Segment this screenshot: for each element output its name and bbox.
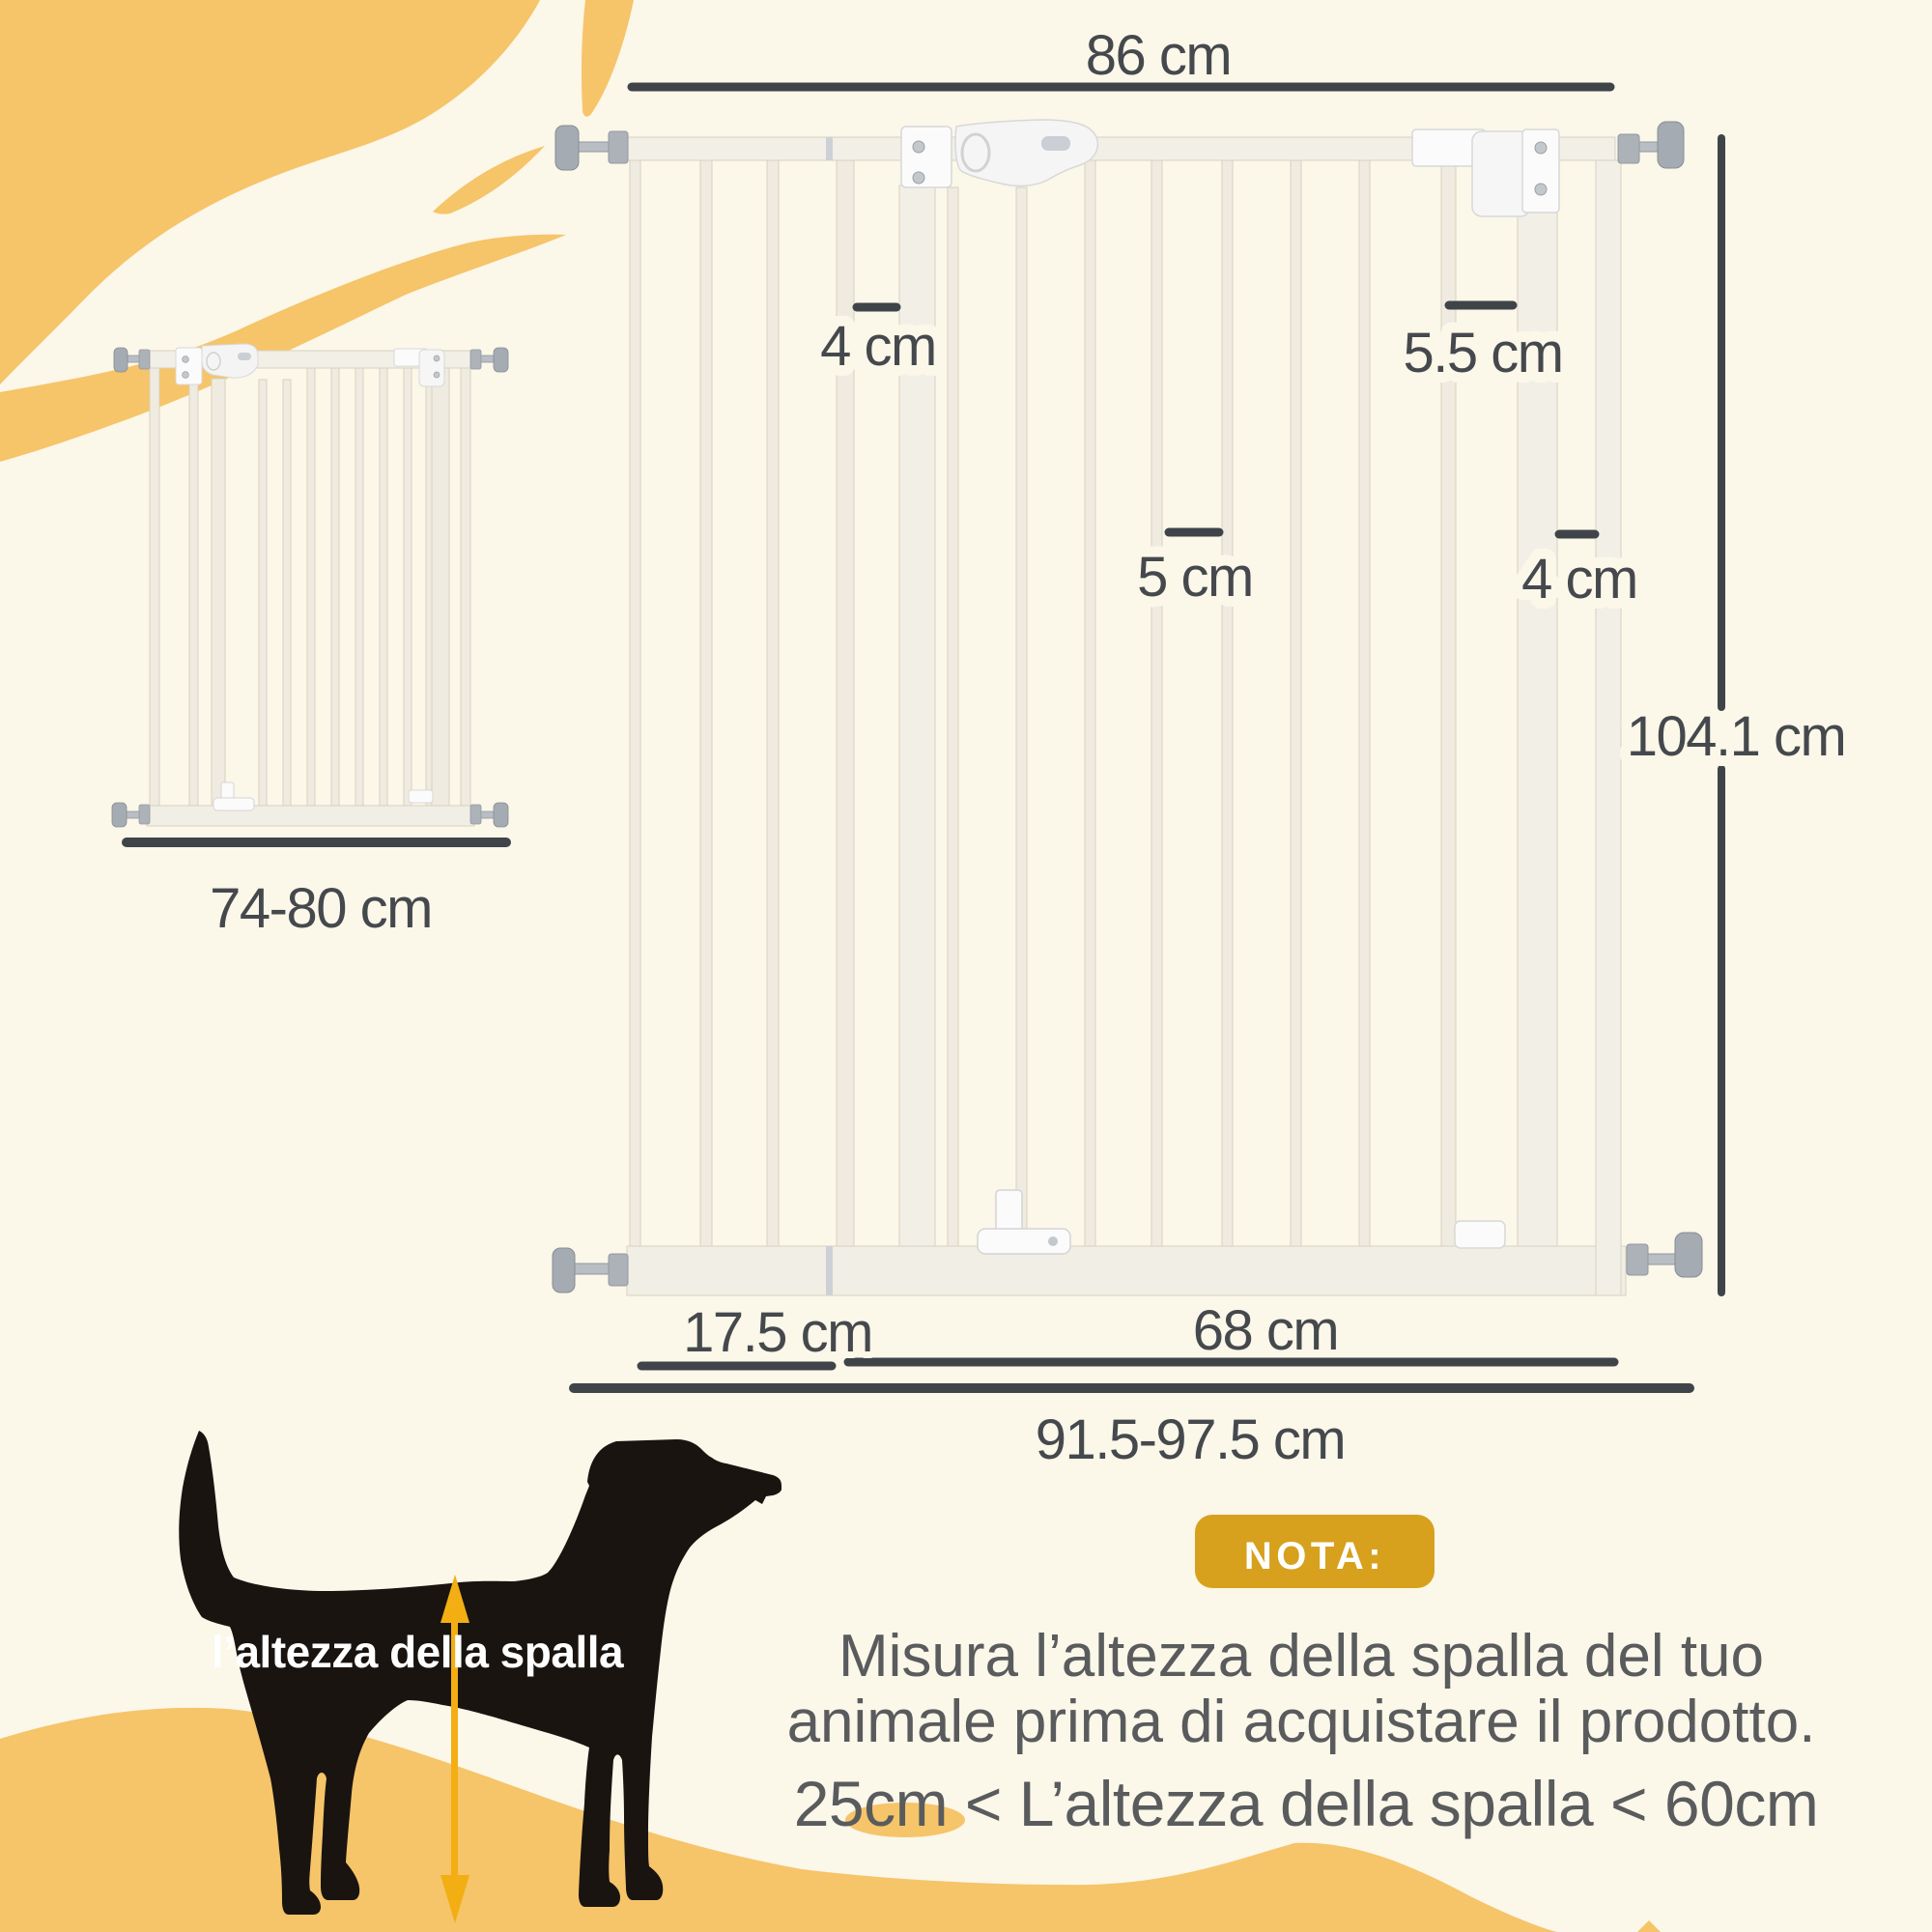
svg-text:86 cm: 86 cm [1086, 24, 1231, 87]
svg-text:5 cm: 5 cm [1137, 546, 1253, 609]
svg-text:NOTA:: NOTA: [1244, 1535, 1385, 1577]
svg-text:91.5-97.5 cm: 91.5-97.5 cm [1036, 1408, 1346, 1471]
svg-text:68 cm: 68 cm [1193, 1299, 1338, 1362]
svg-text:Misura l’altezza della spalla: Misura l’altezza della spalla del tuo [838, 1623, 1764, 1690]
svg-text:4 cm: 4 cm [1521, 548, 1637, 611]
svg-text:l’altezza della spalla: l’altezza della spalla [212, 1627, 624, 1677]
svg-text:104.1 cm: 104.1 cm [1627, 705, 1846, 768]
svg-text:5.5 cm: 5.5 cm [1403, 322, 1562, 384]
svg-text:74-80 cm: 74-80 cm [210, 877, 432, 940]
svg-text:animale prima di acquistare il: animale prima di acquistare il prodotto. [787, 1689, 1816, 1755]
svg-text:17.5 cm: 17.5 cm [683, 1301, 872, 1364]
svg-text:25cm < L’altezza della spalla: 25cm < L’altezza della spalla < 60cm [794, 1768, 1819, 1839]
svg-text:4 cm: 4 cm [820, 315, 936, 378]
